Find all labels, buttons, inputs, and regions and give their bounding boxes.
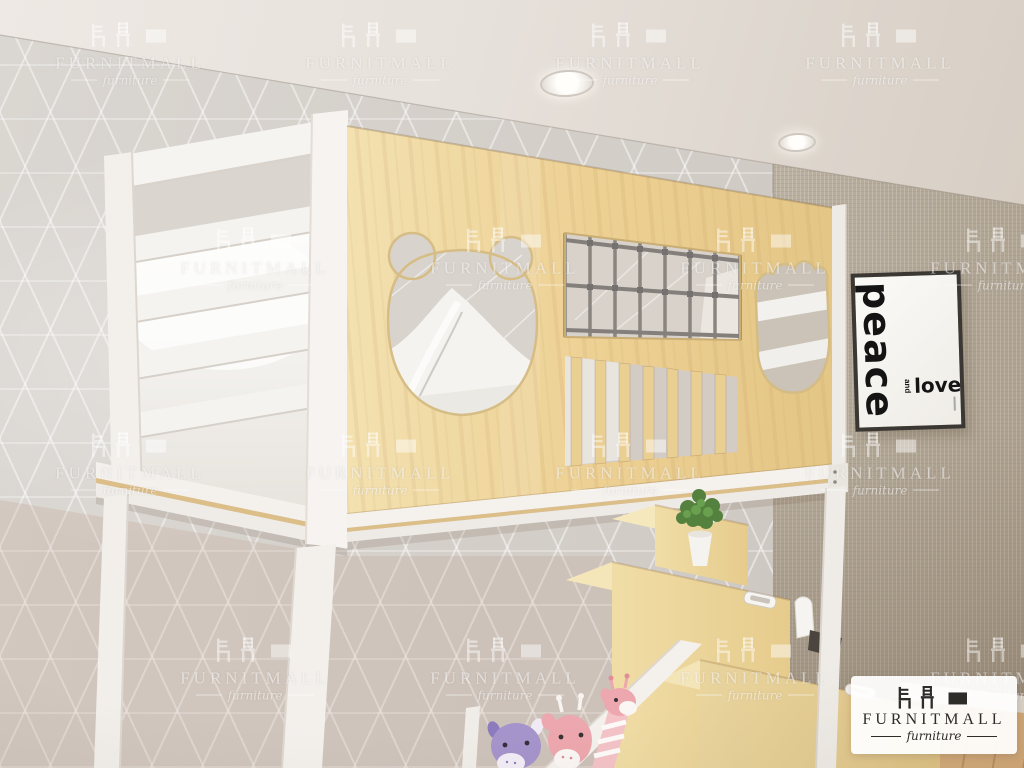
pink-giraffe-toy [539,693,592,768]
divider [871,736,901,737]
bed-leg [94,494,128,768]
bed-post-corner [306,110,348,548]
brand-logo-icons [895,686,973,710]
divider [967,736,997,737]
kids-room-photo: peace and love [0,0,1024,768]
brand-name: FURNITMALL [862,710,1005,729]
purple-unicorn-toy [485,716,545,768]
brand-badge: FURNITMALL furniture [851,676,1017,754]
loft-bed-scene [0,0,1024,768]
brand-tagline: furniture [907,729,962,743]
cabinet-icon [949,693,967,705]
ladder-chair-icon [921,686,934,709]
bed-leg [462,706,480,768]
loft-bed [96,110,848,556]
bed-post-right [832,204,846,465]
side-chair-icon [899,687,911,709]
